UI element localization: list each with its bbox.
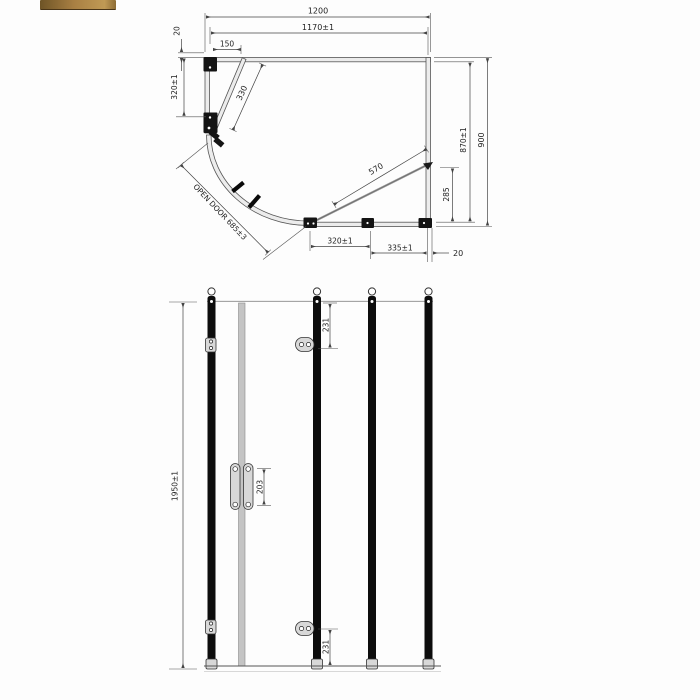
pivot-cap-ball — [368, 288, 375, 295]
pivot-dot — [316, 300, 319, 303]
dim-side-opening: 285 — [440, 168, 459, 222]
plan-bracket-bottom-1 — [304, 218, 318, 229]
pivot-dot — [210, 300, 213, 303]
dim-label-right-wall-thickness: 20 — [453, 249, 463, 258]
elevation-hinge-bottom — [296, 622, 315, 636]
elevation-profile-4 — [425, 288, 433, 666]
dim-door-projection: 150 — [213, 40, 241, 55]
dim-label-door-projection: 150 — [220, 40, 235, 49]
dim-label-overall-height: 1950±1 — [171, 471, 180, 501]
dim-handle-length: 203 — [256, 469, 272, 506]
plan-bracket-top-left — [204, 57, 218, 72]
dim-inner-width: 1170±1 — [210, 23, 428, 55]
plan-right-wall — [426, 58, 431, 227]
dim-diagonal-opening: 570 — [332, 146, 429, 208]
elevation-hinge-top — [296, 338, 315, 352]
dim-left-panel: 320±1 — [170, 59, 206, 117]
dim-bottom-panel-left: 320±1 — [310, 231, 371, 259]
dim-label-diagonal-opening: 570 — [367, 161, 385, 177]
plan-bracket-dot — [209, 116, 211, 118]
dim-label-overall-depth: 900 — [477, 132, 486, 147]
dim-label-open-door: OPEN DOOR 685±3 — [191, 182, 248, 242]
plan-curve-handle-knob — [249, 196, 260, 208]
plan-curve-handle-knob — [233, 183, 244, 192]
dim-label-inner-depth: 870±1 — [459, 127, 468, 153]
plan-bracket-dot — [209, 66, 211, 68]
plan-bracket-dot — [208, 127, 211, 130]
dim-label-overall-width: 1200 — [308, 7, 328, 16]
dim-overall-height: 1950±1 — [169, 302, 197, 669]
pivot-cap-ball — [425, 288, 432, 295]
dim-label-bottom-hinge-offset: 231 — [322, 640, 331, 655]
foot-clip — [312, 659, 323, 669]
pivot-cap-ball — [208, 288, 215, 295]
dim-inner-depth: 870±1 — [434, 62, 475, 222]
shower-enclosure-technical-drawing: 1200 1170±1 150 20 320±1 — [0, 0, 700, 700]
dim-label-bottom-panel-right: 335±1 — [387, 244, 413, 253]
elevation-view: 1950±1 231 203 231 — [169, 288, 441, 672]
dim-door-panel: 330 — [229, 63, 266, 132]
plan-bracket-dot — [312, 222, 314, 224]
plan-bracket-bottom-3 — [419, 218, 433, 228]
plan-view: 1200 1170±1 150 20 320±1 — [170, 7, 492, 263]
foot-clip — [423, 659, 434, 669]
elevation-wall-bracket-top — [206, 338, 217, 352]
dim-label-inner-width: 1170±1 — [302, 23, 334, 32]
pivot-cap-ball — [313, 288, 320, 295]
pivot-dot — [371, 300, 374, 303]
plan-bracket-left-bottom — [204, 113, 218, 134]
foot-clip — [367, 659, 378, 669]
plan-bracket-dot — [366, 222, 368, 224]
dim-label-top-wall-thickness: 20 — [173, 26, 182, 36]
plan-bracket-dot — [307, 222, 309, 224]
vertical-profile — [313, 296, 321, 666]
dim-label-handle-length: 203 — [256, 480, 265, 495]
vertical-profile — [368, 296, 376, 666]
dim-label-bottom-panel-left: 320±1 — [327, 237, 353, 246]
plan-top-wall — [205, 58, 431, 62]
foot-clip — [206, 659, 217, 669]
plan-bracket-dot — [423, 222, 425, 224]
vertical-profile — [425, 296, 433, 666]
dim-label-top-hinge-offset: 231 — [322, 318, 331, 333]
dim-bottom-panel-right: 335±1 — [372, 228, 433, 262]
dim-top-wall-thickness: 20 — [173, 26, 205, 71]
elevation-wall-bracket-bottom — [206, 620, 217, 634]
dim-right-wall-thickness: 20 — [433, 249, 463, 258]
elevation-profile-3 — [368, 288, 376, 666]
dim-label-left-panel: 320±1 — [170, 74, 179, 100]
dim-label-side-opening: 285 — [442, 187, 451, 202]
pivot-dot — [427, 300, 430, 303]
